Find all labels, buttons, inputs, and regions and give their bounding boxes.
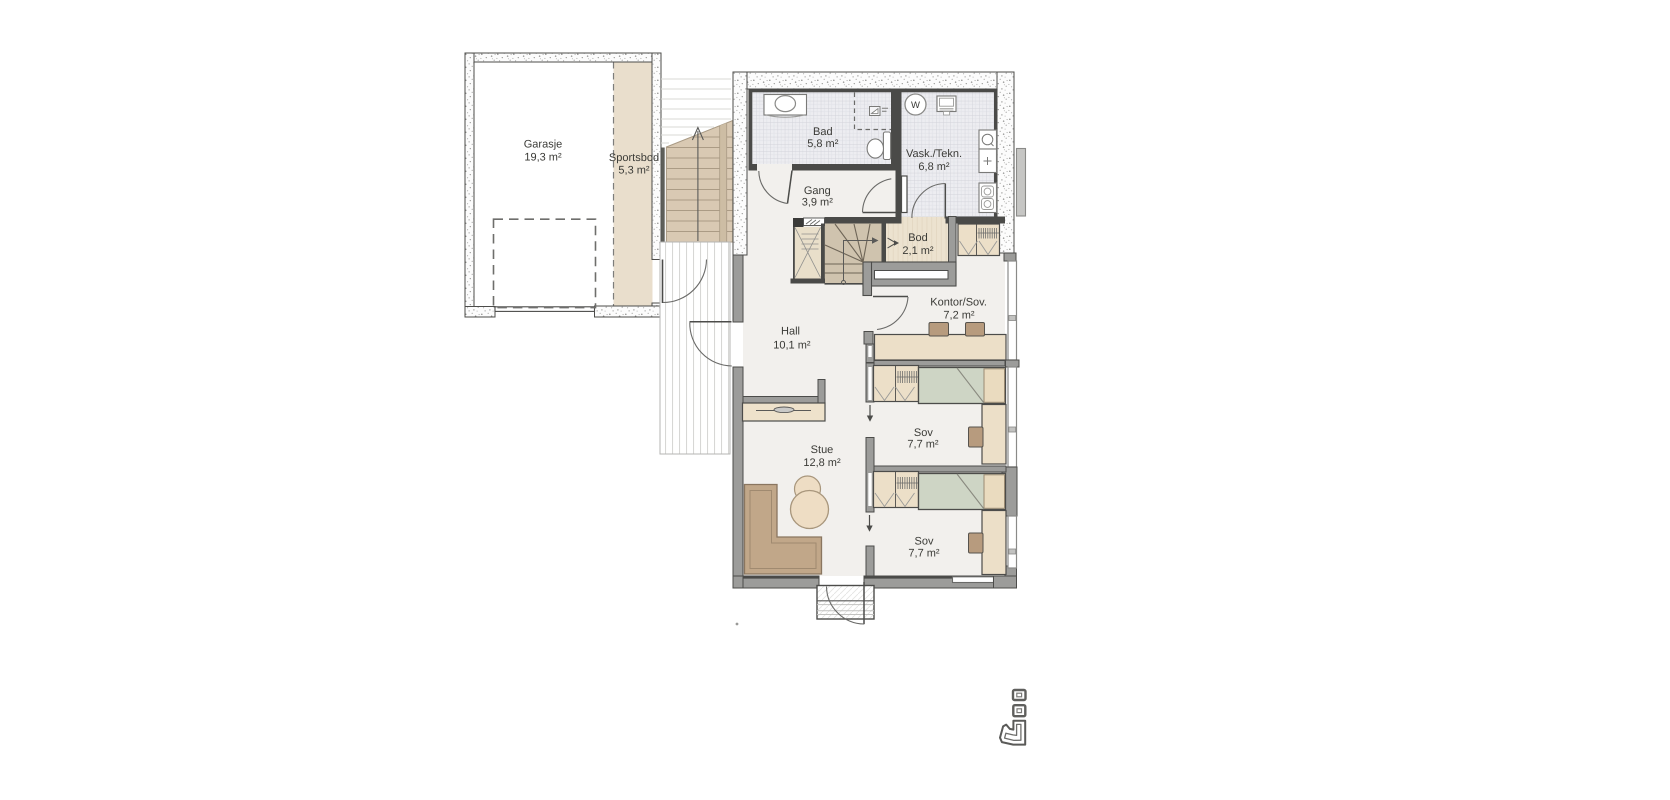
svg-text:5,3 m²: 5,3 m² [618, 165, 650, 177]
svg-text:6,8 m²: 6,8 m² [918, 161, 950, 173]
svg-text:Sportsbod: Sportsbod [609, 152, 659, 164]
svg-text:W: W [911, 100, 920, 111]
svg-text:5,8 m²: 5,8 m² [807, 138, 839, 150]
svg-text:Vask./Tekn.: Vask./Tekn. [906, 148, 962, 160]
svg-text:10,1 m²: 10,1 m² [773, 340, 811, 352]
svg-text:Stue: Stue [811, 444, 834, 456]
svg-text:2,1 m²: 2,1 m² [902, 245, 934, 257]
svg-text:Bod: Bod [908, 232, 928, 244]
svg-text:Gang: Gang [804, 185, 831, 197]
svg-text:Garasje: Garasje [524, 139, 563, 151]
svg-text:7,2 m²: 7,2 m² [943, 310, 975, 322]
svg-text:Sov: Sov [914, 427, 933, 439]
svg-text:Bad: Bad [813, 126, 833, 138]
svg-text:3,9 m²: 3,9 m² [802, 197, 834, 209]
svg-text:19,3 m²: 19,3 m² [524, 152, 562, 164]
svg-text:Sov: Sov [915, 536, 934, 548]
svg-text:Hall: Hall [781, 326, 800, 338]
svg-text:7,7 m²: 7,7 m² [908, 548, 940, 560]
svg-text:Kontor/Sov.: Kontor/Sov. [930, 297, 987, 309]
svg-text:12,8 m²: 12,8 m² [803, 457, 841, 469]
svg-text:7,7 m²: 7,7 m² [907, 439, 939, 451]
